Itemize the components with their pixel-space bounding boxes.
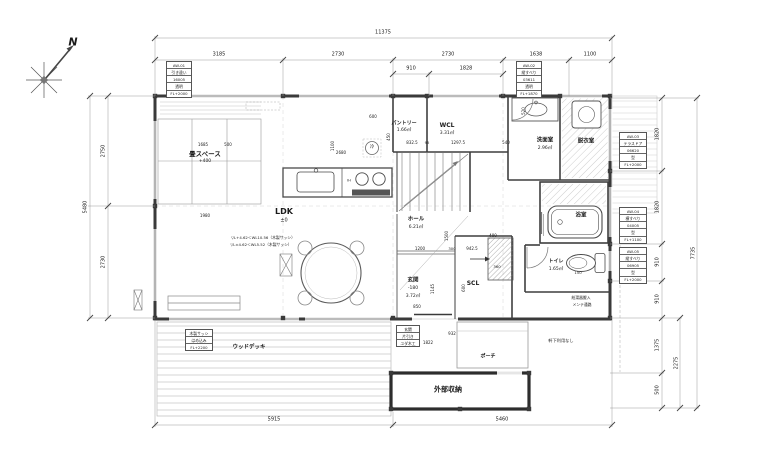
dim-label: 150	[574, 271, 581, 275]
dim-label: 95	[425, 141, 430, 145]
window-spec-aw02-row: 03611	[517, 75, 541, 82]
dim-label: 5460	[496, 418, 509, 423]
dim-label: 540	[502, 141, 510, 145]
dim-label: 832.5	[406, 141, 417, 145]
room-sub-ldk: ±0	[280, 219, 287, 224]
room-label-ldk: LDK	[275, 208, 293, 216]
dim-label: 2730	[442, 53, 455, 58]
dim-label: 360	[493, 265, 500, 269]
dim-label: 2730	[332, 53, 345, 58]
window-spec-aw03-row: FL+2000	[620, 161, 646, 168]
dim-label: 1638	[530, 53, 543, 58]
dim-label: 600	[462, 284, 466, 292]
window-spec-wood-sash: 木製サッシはめ込みFL+2200	[185, 329, 213, 351]
window-spec-aw02: AW-02縦すべり03611透明FL+1870	[516, 61, 542, 98]
window-spec-aw01-row: 引き違い	[167, 68, 191, 75]
dim-label: 850	[413, 305, 421, 309]
dim-label: 3185	[213, 53, 226, 58]
dim-label: 11375	[375, 31, 391, 36]
dim-label: 1820	[656, 201, 661, 214]
annotation-layer: N113753185273027301638110091018282750273…	[0, 0, 768, 465]
dim-label: 5480	[84, 201, 89, 214]
window-spec-aw01: AW-01引き違い16005透明FL+2000	[166, 61, 192, 98]
note-sash-1: ▽L+4.62＜WL10.56（木製サッシ）	[231, 236, 295, 240]
window-spec-aw03-row: 06620	[620, 146, 646, 153]
room-label-datsui: 脱衣室	[578, 139, 595, 145]
floor-plan-canvas: N113753185273027301638110091018282750273…	[0, 0, 768, 465]
room-sub-wcl: 3.31㎡	[440, 132, 455, 137]
room-label-bath: 浴室	[575, 213, 586, 219]
room-label-deck: ウッドデッキ	[232, 345, 265, 351]
dim-label: 1822	[423, 341, 433, 345]
dim-label: 500	[656, 385, 661, 395]
window-spec-aw04-row: FL+1100	[620, 236, 646, 243]
window-spec-aw01-row: 16005	[167, 75, 191, 82]
room-label-hall: ホール	[408, 217, 425, 223]
door-spec-entrance-row: 片引き	[397, 332, 419, 339]
room-label-senmen: 洗面室	[537, 138, 554, 144]
note-boiler-2: メンテ通路	[573, 303, 592, 307]
window-spec-aw03: AW-03テラスドア06620型FL+2000	[619, 132, 647, 169]
room-sub-hall: 6.21㎡	[409, 226, 424, 231]
fixture-label-fridge: 冷	[370, 146, 375, 151]
window-spec-aw03-row: 型	[620, 153, 646, 160]
dim-label: 1200	[415, 247, 425, 251]
dim-label: 400	[489, 234, 497, 238]
dim-label: 600	[369, 115, 377, 119]
compass-north-label: N	[68, 37, 77, 48]
room-sub-senmen: 2.96㎡	[538, 147, 553, 152]
window-spec-wood-sash-row: FL+2200	[186, 343, 212, 350]
room-label-storage: 外部収納	[434, 387, 462, 394]
window-spec-aw04: AW-04横すべり04005型FL+1100	[619, 207, 647, 244]
room-label-toilet: トイレ	[548, 260, 563, 265]
room-label-wcl: WCL	[440, 123, 455, 129]
window-spec-aw04-row: 04005	[620, 221, 646, 228]
window-spec-wood-sash-row: はめ込み	[186, 336, 212, 343]
window-spec-aw05-row: 06905	[620, 261, 646, 268]
dim-label: 910	[656, 257, 661, 267]
dim-label: 910	[406, 67, 416, 72]
window-spec-aw02-row: 縦すべり	[517, 68, 541, 75]
window-spec-aw05-row: FL+2000	[620, 276, 646, 283]
dim-label: 500	[224, 143, 232, 147]
note-boiler-1: 給湯器搬入	[572, 296, 591, 300]
dim-label: 2750	[102, 145, 107, 158]
room-label-tatami: 畳スペース	[189, 151, 221, 158]
dim-label: 910	[656, 294, 661, 304]
room-label-pantry: パントリー	[391, 122, 416, 127]
dim-label: 2730	[102, 256, 107, 269]
room-sub-toilet: 1.65㎡	[549, 268, 564, 273]
dim-label: 2680	[336, 151, 346, 155]
room-label-porch: ポーチ	[480, 355, 495, 360]
dim-label: 2275	[675, 357, 680, 370]
dim-label: 1145	[431, 284, 435, 294]
note-sash-2: ▽L±4.62＜WL5.52（木製サッシ）	[230, 243, 291, 247]
room-sub-tatami: +400	[199, 160, 211, 165]
dim-label: 7735	[692, 247, 697, 260]
door-spec-entrance: 玄関片引きユダ木工	[396, 325, 420, 347]
dim-label: 520	[522, 107, 526, 115]
window-spec-aw03-row: テラスドア	[620, 139, 646, 146]
window-spec-aw04-row: 型	[620, 228, 646, 235]
dim-label: 932	[448, 332, 456, 336]
dim-label: 1820	[656, 128, 661, 141]
room-label-scl: SCL	[467, 281, 480, 287]
dim-label: 1375	[656, 339, 661, 352]
window-spec-aw05: AW-05縦すべり06905型FL+2000	[619, 247, 647, 284]
room-label-genkan: 玄関	[407, 278, 418, 284]
dim-label: 1100	[584, 53, 597, 58]
window-spec-aw01-row: 透明	[167, 82, 191, 89]
dim-label: 1828	[460, 67, 473, 72]
dim-label: 450	[387, 133, 391, 141]
room-sub-pantry: 1.66㎡	[397, 129, 412, 134]
dim-label: 1685	[198, 143, 208, 147]
dim-label: 1980	[200, 214, 210, 218]
fixture-label-ih: IH	[347, 179, 351, 183]
room-sub-genkan-area: 3.72㎡	[406, 295, 421, 300]
window-spec-aw01-row: FL+2000	[167, 90, 191, 97]
window-spec-aw05-row: 縦すべり	[620, 254, 646, 261]
dim-label: 1100	[331, 141, 335, 151]
dim-label: 1297.5	[451, 141, 465, 145]
window-spec-aw02-row: 透明	[517, 82, 541, 89]
window-spec-aw05-row: 型	[620, 268, 646, 275]
door-spec-entrance-row: ユダ木工	[397, 339, 419, 346]
window-spec-wood-sash-row: 木製サッシ	[186, 330, 212, 336]
note-eaves: 軒下利用なし	[548, 339, 573, 343]
window-spec-aw02-row: FL+1870	[517, 90, 541, 97]
dim-label: 1500	[445, 231, 449, 241]
dim-label: 5915	[268, 418, 281, 423]
dim-label: 942.5	[466, 247, 477, 251]
dim-label: 300	[448, 247, 455, 251]
room-sub-genkan-level: -180	[408, 287, 418, 292]
window-spec-aw04-row: 横すべり	[620, 214, 646, 221]
